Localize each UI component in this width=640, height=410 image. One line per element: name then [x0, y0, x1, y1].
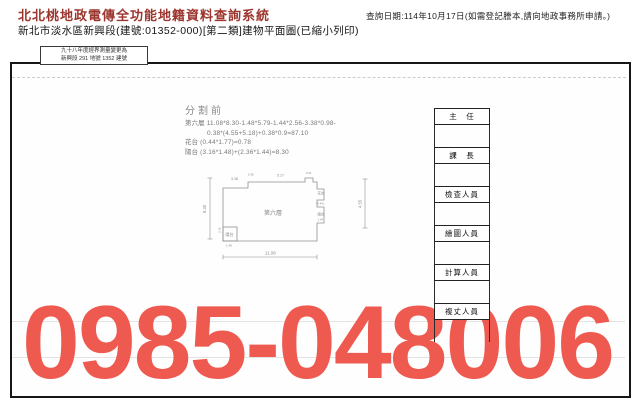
- dim-top-small-2: 0.91: [306, 171, 312, 175]
- remark-line-2: 新興段 291 地號 1352 建號: [41, 55, 147, 63]
- balcony-left-label: 陽台: [226, 231, 234, 237]
- sig-space: [434, 125, 490, 147]
- balcony-right-label: 陽台: [318, 212, 325, 217]
- sig-box-section-chief: 課 長: [434, 147, 490, 164]
- divider-dashed-line: [12, 77, 626, 78]
- document-subtitle: 新北市淡水區新興段(建號:01352-000)[第二類]建物平面圖(已縮小列印): [18, 23, 359, 38]
- sig-space: [434, 203, 490, 225]
- phone-number-overlay: 0985-048006: [22, 291, 634, 395]
- remark-box: 九十八年度經界測量變更為 新興段 291 地號 1352 建號: [40, 46, 148, 65]
- calc-line-balcony: 陽台 (3.16*1.48)+(2.36*1.44)=8.30: [185, 148, 336, 158]
- dim-top-small-1: 0.38: [248, 173, 254, 177]
- sig-box-inspector: 檢查人員: [434, 186, 490, 203]
- area-calculation-block: 第六層 11.08*8.30-1.48*5.79-1.44*2.56-3.38*…: [185, 119, 336, 157]
- sig-box-surveyor: 複丈人員: [434, 303, 490, 320]
- room-label: 第六層: [264, 209, 282, 217]
- sig-box-draftsman: 繪圖人員: [434, 225, 490, 242]
- section-label-before-split: 分割前: [185, 102, 224, 117]
- signature-column: 主 任 課 長 檢查人員 繪圖人員 計算人員 複丈人員: [434, 108, 490, 342]
- dim-left: 8.30: [202, 204, 207, 213]
- balcony-left-dim-h: 3.16: [218, 227, 222, 233]
- dim-right: 4.55: [358, 199, 363, 208]
- dim-top-left: 3.38: [231, 177, 238, 181]
- balcony-right-dim: 1.44: [318, 218, 324, 222]
- floor-plan-drawing: 第六層 11.08 8.30 4.55 3.38 0.38 5.17 0.91 …: [193, 160, 397, 278]
- floor-plan-outline: [223, 178, 324, 241]
- dim-top-mid: 5.17: [277, 174, 284, 178]
- sig-space: [434, 242, 490, 264]
- query-date-text: 查詢日期:114年10月17日(如需登記謄本,請向地政事務所申請。): [366, 10, 610, 22]
- remark-line-1: 九十八年度經界測量變更為: [41, 47, 147, 55]
- sig-box-director: 主 任: [434, 108, 490, 125]
- flower-box-label: 花台: [318, 191, 325, 196]
- sig-space: [434, 320, 490, 342]
- calc-line-floor: 第六層 11.08*8.30-1.48*5.79-1.44*2.56-3.38*…: [185, 119, 336, 129]
- sig-box-calculator: 計算人員: [434, 264, 490, 281]
- dim-bottom: 11.08: [265, 251, 276, 256]
- sig-space: [434, 164, 490, 186]
- sig-space: [434, 281, 490, 303]
- system-title: 北北桃地政電傳全功能地籍資料查詢系統: [18, 5, 270, 24]
- balcony-left-dim-w: 1.48: [226, 244, 232, 248]
- flower-box-dim: (0.44): [317, 202, 324, 206]
- calc-line-flowerbed: 花台 (0.44*1.77)=0.78: [185, 138, 336, 148]
- calc-line-floor-cont: 0.38*(4.55+5.18)+0.38*0.9=87.10: [185, 129, 336, 139]
